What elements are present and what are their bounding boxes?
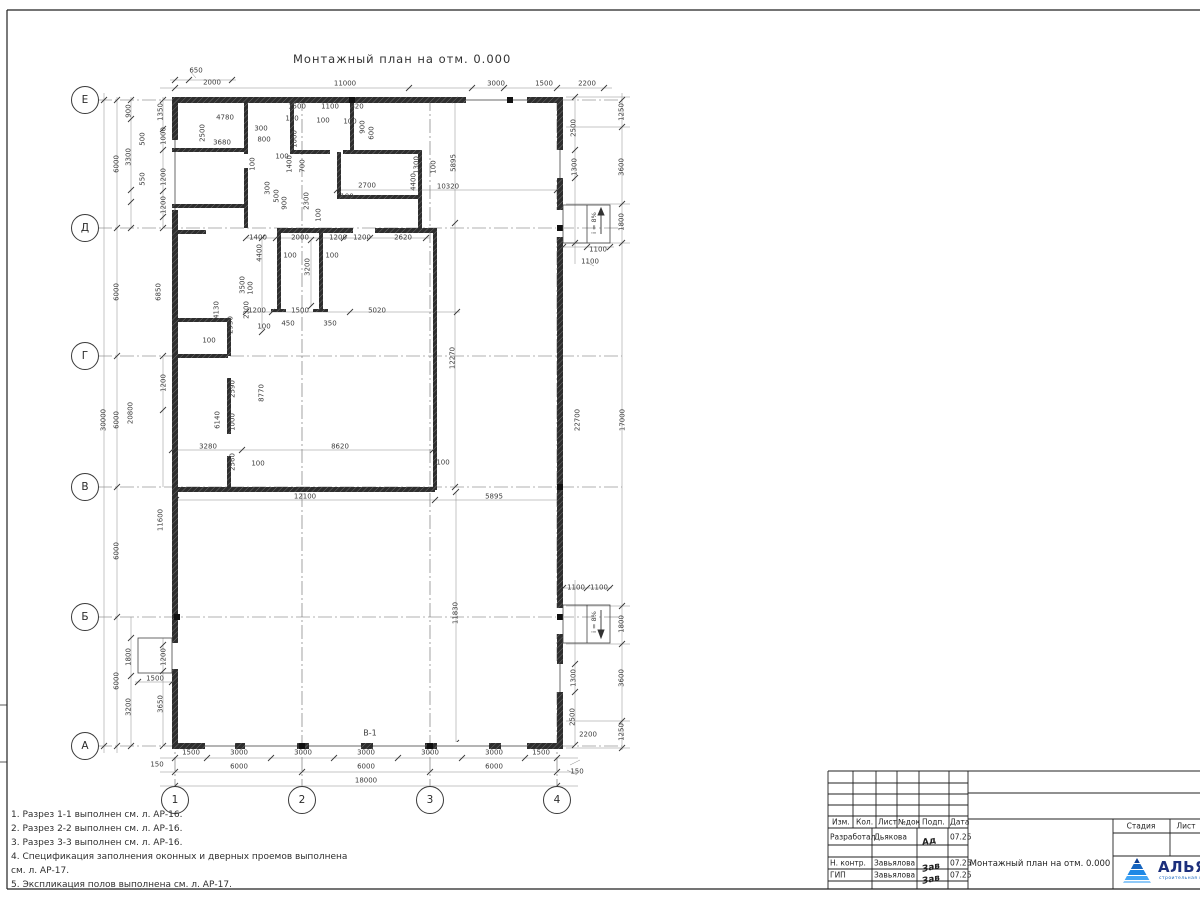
tb-row-role: ГИП bbox=[830, 871, 846, 880]
tb-sheet-header: Лист bbox=[1176, 822, 1195, 831]
interior-walls bbox=[172, 97, 437, 492]
notes-block: 1. Разрез 1-1 выполнен см. л. АР-16.2. Р… bbox=[11, 808, 347, 892]
plan-title: Монтажный план на отм. 0.000 bbox=[293, 52, 511, 66]
tb-row-name: Завьялова bbox=[874, 871, 915, 880]
tb-header-kol: Кол. bbox=[856, 818, 873, 827]
tb-row-role: Разработал bbox=[830, 833, 875, 842]
tb-row-date: 07.25 bbox=[950, 833, 971, 842]
ramp-slope-label-bottom: i = 8% bbox=[590, 611, 598, 633]
logo-tagline: строительная компания bbox=[1159, 876, 1200, 881]
note-line: 3. Разрез 3-3 выполнен см. л. АР-16. bbox=[11, 836, 347, 850]
tb-doc-title: Монтажный план на отм. 0.000 bbox=[970, 859, 1111, 869]
sheet-frame bbox=[0, 10, 1200, 889]
tb-header-podp: Подп. bbox=[922, 818, 945, 827]
note-line: 4. Спецификация заполнения оконных и две… bbox=[11, 850, 347, 864]
drawing-sheet: 6502000110003000150022001500300030003000… bbox=[0, 0, 1200, 900]
company-logo: АЛЬЯНС строительная компания bbox=[1122, 857, 1200, 887]
dimension-lines bbox=[104, 71, 630, 786]
note-line: см. л. АР-17. bbox=[11, 864, 347, 878]
tb-header-ndok: №док bbox=[898, 818, 920, 827]
note-line: 5. Экспликация полов выполнена см. л. АР… bbox=[11, 878, 347, 892]
note-line: 2. Разрез 2-2 выполнен см. л. АР-16. bbox=[11, 822, 347, 836]
logo-triangle-icon bbox=[1122, 857, 1152, 885]
tb-header-data: Дата bbox=[950, 818, 969, 827]
column-markers bbox=[174, 97, 563, 749]
dimension-ticks bbox=[101, 77, 625, 789]
tb-row-role: Н. контр. bbox=[830, 859, 866, 868]
tb-header-izm: Изм. bbox=[832, 818, 850, 827]
tb-row-date: 07.25 bbox=[950, 871, 971, 880]
tb-row-name: Завьялова bbox=[874, 859, 915, 868]
wall-mark-v1: В-1 bbox=[363, 729, 376, 738]
note-line: 1. Разрез 1-1 выполнен см. л. АР-16. bbox=[11, 808, 347, 822]
porch-and-ramps bbox=[138, 205, 610, 673]
logo-name: АЛЬЯНС bbox=[1158, 858, 1200, 876]
tb-header-list: Лист bbox=[878, 818, 897, 827]
tb-row-date: 07.25 bbox=[950, 859, 971, 868]
ramp-slope-label-top: i = 8% bbox=[590, 212, 598, 234]
tb-stage-header: Стадия bbox=[1127, 822, 1156, 831]
tb-row-name: Дьякова bbox=[874, 833, 907, 842]
plan-drawing bbox=[0, 0, 1200, 900]
ramp-arrows bbox=[598, 208, 604, 638]
